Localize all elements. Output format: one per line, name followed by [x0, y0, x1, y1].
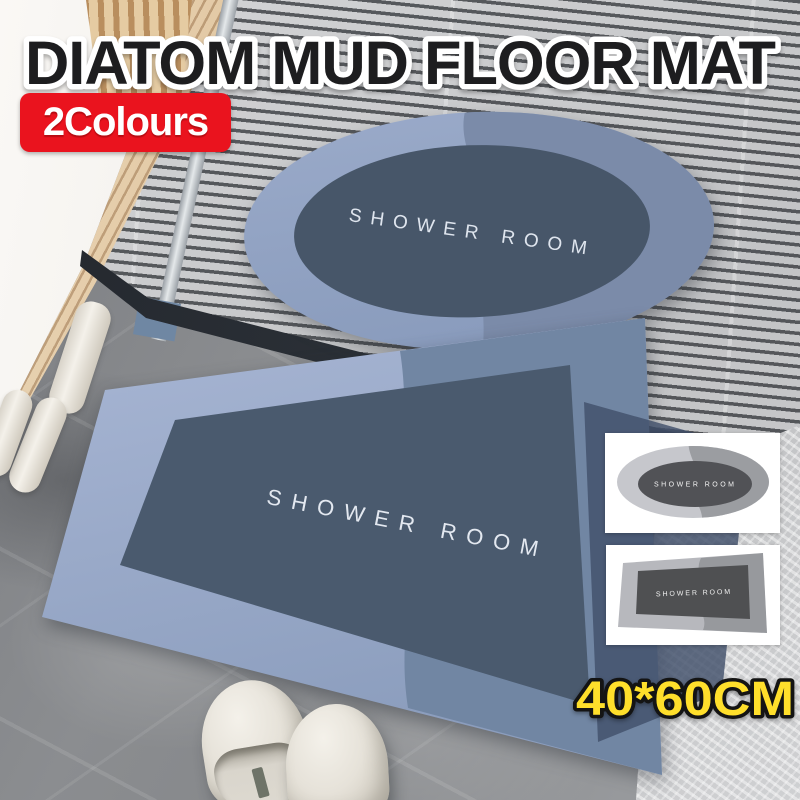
- slipper-toe: [283, 701, 391, 800]
- product-promo-image: SHOWER ROOM SHOWER ROOM SHOWER ROOM: [0, 0, 800, 800]
- size-label-text: 40*60CM: [576, 673, 794, 726]
- size-label: 40*60CM: [570, 668, 800, 730]
- variant-card-grey-oval: SHOWER ROOM: [605, 433, 780, 533]
- colours-badge: 2Colours: [20, 93, 231, 152]
- grey-oval-label: SHOWER ROOM: [654, 482, 736, 489]
- variant-card-grey-rectangle: SHOWER ROOM: [606, 545, 780, 645]
- slipper-logo-slot: [251, 767, 269, 799]
- colours-badge-label: 2Colours: [43, 100, 208, 145]
- grey-rectangle-mat: SHOWER ROOM: [606, 545, 780, 645]
- grey-oval-mat: SHOWER ROOM: [605, 433, 780, 533]
- right-slipper: [283, 701, 391, 800]
- headline-text: DIATOM MUD FLOOR MAT: [25, 29, 776, 97]
